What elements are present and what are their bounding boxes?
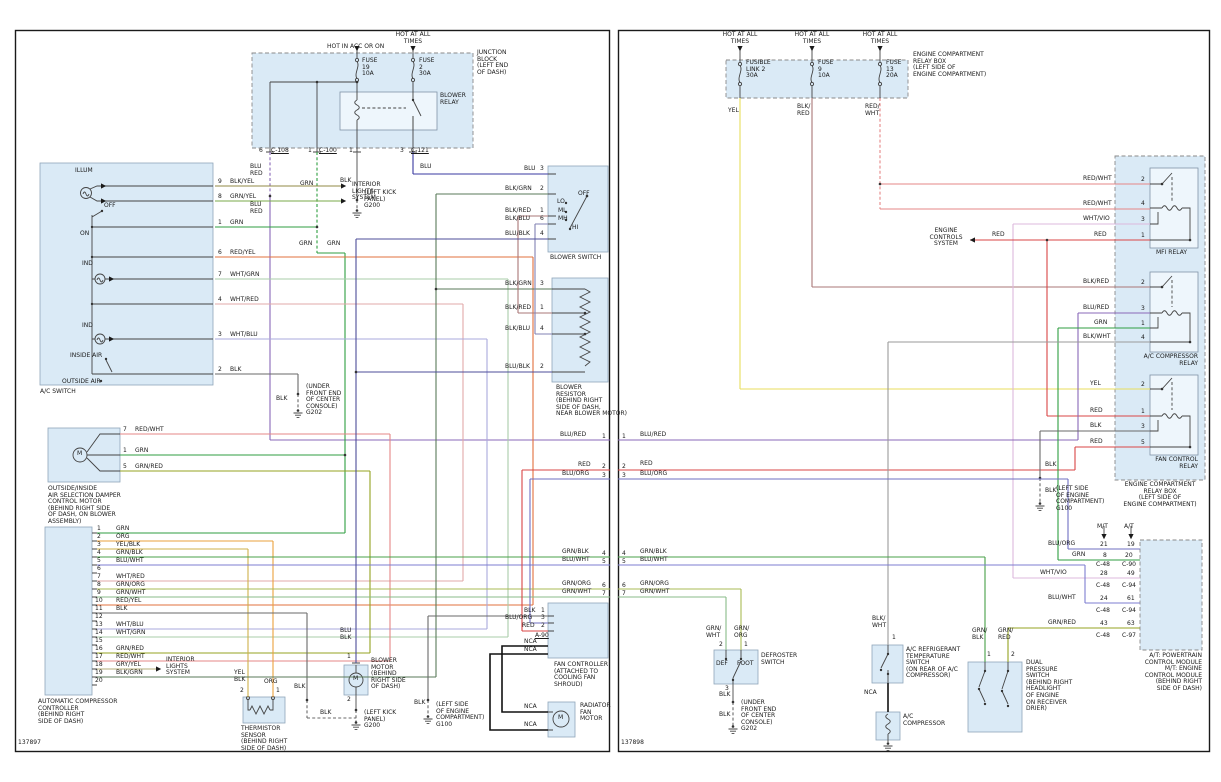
connector-label: C-48 <box>1096 583 1110 590</box>
pin-number: 2 <box>347 697 351 704</box>
wire-label: BLU/BLK <box>505 364 530 371</box>
wire-label: BLU/WHT <box>1048 595 1076 602</box>
pin-number: 21 <box>1100 542 1108 549</box>
wire-label: BLK/GRN <box>505 186 532 193</box>
wire-label: BLK <box>294 684 305 691</box>
wire-label: GRN/RED <box>116 646 144 653</box>
pin-number: 2 <box>240 688 244 695</box>
wire-label: WHT/GRN <box>230 272 259 279</box>
wire-label: GRY/YEL <box>116 662 141 669</box>
wire-label: BLK <box>1045 488 1056 495</box>
pin-number: 49 <box>1127 571 1135 578</box>
pin-number: 3 <box>1141 217 1145 224</box>
fuse-2-label: FUSE 2 30A <box>419 58 434 78</box>
wire-label: BLK/WHT <box>1083 334 1111 341</box>
wire-label: BLU/ORG <box>1048 541 1075 548</box>
pin-number: 20 <box>1125 553 1133 560</box>
pin-number: 3 <box>602 473 606 480</box>
connector-label: C-48 <box>1096 633 1110 640</box>
connector-label: C-94 <box>1122 608 1136 615</box>
wire-label: RED/WHT <box>135 427 164 434</box>
pin-number: 3 <box>622 473 626 480</box>
blower-relay-label: BLOWER RELAY <box>440 93 466 106</box>
wire-label: BLK <box>719 712 730 719</box>
connector-label: C-48 <box>1096 608 1110 615</box>
pcm-label: A/T: POWERTRAIN CONTROL MODULE M/T: ENGI… <box>1134 653 1202 693</box>
wire-label: RED <box>992 232 1005 239</box>
pin-number: 63 <box>1127 621 1135 628</box>
pin-number: 2 <box>1141 280 1145 287</box>
pin-number: 2 <box>602 464 606 471</box>
relay-box-label: ENGINE COMPARTMENT RELAY BOX (LEFT SIDE … <box>1118 482 1202 508</box>
pin-number: 9 <box>97 590 101 597</box>
connector-label: C-121 <box>411 148 429 155</box>
motor-symbol-letter: M <box>77 451 82 458</box>
pin-number: 7 <box>123 427 127 434</box>
wire-label: GRN/WHT <box>562 589 591 596</box>
pin-number: 2 <box>540 186 544 193</box>
pin-number: 3 <box>1141 424 1145 431</box>
pin-number: 7 <box>97 574 101 581</box>
defroster-foot-label: FOOT <box>737 661 754 668</box>
blower-motor-label: BLOWER MOTOR (BEHIND RIGHT SIDE OF DASH) <box>371 658 406 691</box>
wire-label: WHT/GRN <box>116 630 145 637</box>
blower-resistor-label: BLOWER RESISTOR (BEHIND RIGHT SIDE OF DA… <box>556 385 627 418</box>
pin-number: 1 <box>540 208 544 215</box>
wire-label: BLU/WHT <box>116 558 144 565</box>
pin-number: 19 <box>1127 542 1135 549</box>
wire-label: GRN/WHT <box>116 590 145 597</box>
wire-label: RED <box>522 623 535 630</box>
wire-label: RED <box>1094 232 1107 239</box>
pin-number: 16 <box>95 646 103 653</box>
wire-label: ORG <box>264 679 278 686</box>
pcm-column-mt: M/T <box>1097 524 1108 531</box>
ground-label-g200: (LEFT KICK PANEL) G200 <box>364 710 396 730</box>
wire-label: BLK <box>1090 423 1101 430</box>
pin-number: 8 <box>97 582 101 589</box>
pin-number: 1 <box>987 652 991 659</box>
pin-number: 6 <box>602 583 606 590</box>
pin-number: 2 <box>1141 382 1145 389</box>
wire-label: BLU/WHT <box>640 557 668 564</box>
pin-number: 4 <box>622 551 626 558</box>
wire-label: GRN/ WHT <box>706 626 721 639</box>
pin-number: 12 <box>95 614 103 621</box>
wire-label: YEL BLK <box>234 670 245 683</box>
wire-label: GRN/ ORG <box>734 626 749 639</box>
wire-label: BLK/ WHT <box>872 616 886 629</box>
wire-label: RED <box>1090 439 1103 446</box>
pin-number: 1 <box>1141 233 1145 240</box>
pin-number: 5 <box>123 464 127 471</box>
wire-label: BLU RED <box>250 202 263 215</box>
wire-label: BLU <box>524 166 536 173</box>
pin-number: 2 <box>541 623 545 630</box>
connector-label: C-97 <box>1122 633 1136 640</box>
mfi-relay-label: MFI RELAY <box>1156 250 1187 257</box>
pin-number: 11 <box>95 606 103 613</box>
connector-label: C-108 <box>271 148 289 155</box>
wire-label: RED/WHT <box>116 654 145 661</box>
pin-number: 3 <box>540 281 544 288</box>
ac-switch-inside-air-label: INSIDE AIR <box>70 353 102 360</box>
wire-label: BLK <box>719 692 730 699</box>
wire-label: GRN <box>116 526 129 533</box>
compressor-controller-label: AUTOMATIC COMPRESSOR CONTROLLER (BEHIND … <box>38 699 117 725</box>
wire-label: YEL <box>728 108 739 115</box>
wire-label: GRN/RED <box>135 464 163 471</box>
connector-label: C-48 <box>1096 562 1110 569</box>
wire-label: RED/ WHT <box>865 104 880 117</box>
pin-number: 13 <box>95 622 103 629</box>
header-hot-at-all-times: HOT AT ALL TIMES <box>860 32 900 45</box>
wire-label: BLU/ORG <box>505 615 532 622</box>
motor-symbol-letter: M <box>558 715 563 722</box>
pin-number: 1 <box>744 642 748 649</box>
wire-label: BLK <box>414 700 425 707</box>
wire-label: GRN/ORG <box>116 582 145 589</box>
fuse-13-label: FUSE 13 20A <box>886 60 901 80</box>
pin-number: 1 <box>308 148 312 155</box>
wire-label: GRN/BLK <box>562 549 589 556</box>
pin-number: 6 <box>259 148 263 155</box>
pin-number: 43 <box>1100 621 1108 628</box>
wire-label: BLK/ RED <box>797 104 810 117</box>
wire-label: BLK/GRN <box>505 281 532 288</box>
wire-label: GRN/BLK <box>116 550 143 557</box>
pin-number: 2 <box>540 364 544 371</box>
wire-label: GRN <box>135 448 148 455</box>
ground-label-g202: (UNDER FRONT END OF CENTER CONSOLE) G202 <box>306 384 341 417</box>
wire-label: GRN/ORG <box>640 581 669 588</box>
wire-label: BLU/RED <box>560 432 586 439</box>
pin-number: 4 <box>218 297 222 304</box>
pin-number: 3 <box>97 542 101 549</box>
wire-label: GRN/RED <box>1048 620 1076 627</box>
wire-label: BLU/RED <box>1083 305 1109 312</box>
wire-label: GRN <box>299 241 312 248</box>
wire-label: NCA <box>524 647 537 654</box>
system-ref-interior-lights: INTERIOR LIGHTS SYSTEM <box>166 657 195 677</box>
pin-number: 6 <box>540 216 544 223</box>
pin-number: 7 <box>218 272 222 279</box>
wire-label: RED <box>1090 408 1103 415</box>
wire-label: BLK <box>276 396 287 403</box>
wire-label: RED/YEL <box>116 598 141 605</box>
wire-label: WHT/VIO <box>1040 570 1067 577</box>
blower-switch-off-label: OFF <box>578 191 590 198</box>
pin-number: 3 <box>218 332 222 339</box>
wire-label: RED <box>578 462 591 469</box>
fuse-9-label: FUSE 9 10A <box>818 60 833 80</box>
wire-label: RED/WHT <box>1083 201 1112 208</box>
pin-number: 14 <box>95 630 103 637</box>
pin-number: 1 <box>276 688 280 695</box>
damper-motor-label: OUTSIDE/INSIDE AIR SELECTION DAMPER CONT… <box>48 486 121 526</box>
pin-number: 4 <box>97 550 101 557</box>
wire-label: BLK/YEL <box>230 179 254 186</box>
wire-label: WHT/RED <box>230 297 259 304</box>
wire-label: BLK/GRN <box>116 670 143 677</box>
pin-number: 1 <box>97 526 101 533</box>
pin-number: 1 <box>347 654 351 661</box>
defroster-def-label: DEF <box>716 661 728 668</box>
pin-number: 2 <box>1141 177 1145 184</box>
ac-compressor-relay-label: A/C COMPRESSOR RELAY <box>1140 354 1198 367</box>
ac-switch-on-label: ON <box>80 231 89 238</box>
wire-label: GRN/ORG <box>562 581 591 588</box>
fuse-19-label: FUSE 19 10A <box>362 58 377 78</box>
wire-label: GRN/WHT <box>640 589 669 596</box>
pcm-column-at: A/T <box>1124 524 1134 531</box>
pin-number: 5 <box>97 558 101 565</box>
pin-number: 2 <box>1011 652 1015 659</box>
blower-switch-hi-label: HI <box>572 225 578 232</box>
defroster-switch-label: DEFROSTER SWITCH <box>761 653 797 666</box>
ac-switch-illum-label: ILLUM <box>75 168 93 175</box>
fan-controller-label: FAN CONTROLLER (ATTACHED TO COOLING FAN … <box>554 662 608 688</box>
pin-number: 2 <box>218 367 222 374</box>
wire-label: GRN <box>1072 552 1085 559</box>
ac-switch-label: A/C SWITCH <box>40 389 76 396</box>
temp-switch-label: A/C REFRIGERANT TEMPERATURE SWITCH (ON R… <box>906 647 960 680</box>
pin-number: 8 <box>1103 553 1107 560</box>
wire-label: BLK/RED <box>505 208 531 215</box>
pin-number: 4 <box>1141 201 1145 208</box>
pin-number: 3 <box>541 615 545 622</box>
dual-pressure-switch-label: DUAL PRESSURE SWITCH (BEHIND RIGHT HEADL… <box>1026 660 1072 713</box>
wire-label: BLK/BLU <box>505 216 530 223</box>
pin-number: 10 <box>95 598 103 605</box>
wire-label: YEL <box>1090 381 1101 388</box>
blower-switch-mh-label: MH <box>558 216 568 223</box>
pin-number: 8 <box>218 194 222 201</box>
wire-label: BLU/RED <box>640 432 666 439</box>
pin-number: 4 <box>602 551 606 558</box>
blower-switch-label: BLOWER SWITCH <box>550 255 601 262</box>
wire-label: BLU RED <box>250 164 263 177</box>
wire-label: WHT/BLU <box>230 332 258 339</box>
wire-label: BLK <box>116 606 127 613</box>
pin-number: 1 <box>218 220 222 227</box>
fusible-link-label: FUSIBLE LINK 2 30A <box>746 60 771 80</box>
system-ref-interior-lights: INTERIOR LIGHTS SYSTEM <box>352 182 381 202</box>
wire-label: GRN/ RED <box>998 628 1013 641</box>
wire-label: YEL/BLK <box>116 542 140 549</box>
system-ref-engine-controls: ENGINE CONTROLS SYSTEM <box>928 228 964 248</box>
ac-switch-ind-label: IND <box>82 323 93 330</box>
pin-number: 9 <box>218 179 222 186</box>
pin-number: 1 <box>602 434 606 441</box>
wire-label: ORG <box>116 534 130 541</box>
wire-label: GRN <box>300 181 313 188</box>
pin-number: 6 <box>622 583 626 590</box>
wire-label: BLU/WHT <box>562 557 590 564</box>
wire-label: GRN <box>327 241 340 248</box>
wire-label: NCA <box>864 690 877 697</box>
pin-number: 6 <box>97 566 101 573</box>
wire-label: RED/YEL <box>230 250 255 257</box>
pin-number: 15 <box>95 638 103 645</box>
connector-label: A-90 <box>535 633 549 640</box>
pin-number: 7 <box>602 591 606 598</box>
wire-label: NCA <box>524 704 537 711</box>
pin-number: 1 <box>892 635 896 642</box>
ac-switch-off-label: OFF <box>104 203 116 210</box>
pin-number: 2 <box>622 464 626 471</box>
wire-label: RED/WHT <box>1083 176 1112 183</box>
wire-label: BLK <box>1045 462 1056 469</box>
pin-number: 5 <box>1141 440 1145 447</box>
diagram-code: 137897 <box>18 740 41 747</box>
diagram-code: 137898 <box>621 740 644 747</box>
pin-number: 7 <box>622 591 626 598</box>
pin-number: 17 <box>95 654 103 661</box>
header-hot-at-all-times: HOT AT ALL TIMES <box>393 32 433 45</box>
pin-number: 1 <box>1141 321 1145 328</box>
pin-number: 3 <box>400 148 404 155</box>
connector-label: C-94 <box>1122 583 1136 590</box>
pin-number: 1 <box>1141 409 1145 416</box>
motor-symbol-letter: M <box>353 676 358 683</box>
pin-number: 20 <box>95 678 103 685</box>
junction-block-label: JUNCTION BLOCK (LEFT END OF DASH) <box>477 50 508 76</box>
pin-number: 2 <box>719 642 723 649</box>
wire-label: BLK <box>230 367 241 374</box>
wire-label: WHT/BLU <box>116 622 144 629</box>
ground-label-g100: (LEFT SIDE OF ENGINE COMPARTMENT) G100 <box>436 702 484 728</box>
wire-label: GRN/ BLK <box>972 628 987 641</box>
blower-switch-lo-label: LO <box>557 199 565 206</box>
wire-label: NCA <box>524 639 537 646</box>
wire-label: GRN/BLK <box>640 549 667 556</box>
pin-number: 61 <box>1127 596 1135 603</box>
wire-label: GRN <box>230 220 243 227</box>
pin-number: 28 <box>1100 571 1108 578</box>
wire-label: BLU <box>420 164 432 171</box>
pin-number: 1 <box>123 448 127 455</box>
wire-label: BLU/BLK <box>505 231 530 238</box>
fan-control-relay-label: FAN CONTROL RELAY <box>1146 457 1198 470</box>
wire-label: WHT/VIO <box>1083 216 1110 223</box>
pin-number: 18 <box>95 662 103 669</box>
relay-box-label: ENGINE COMPARTMENT RELAY BOX (LEFT SIDE … <box>913 52 986 78</box>
pin-number: 5 <box>602 559 606 566</box>
wire-label: GRN <box>1094 320 1107 327</box>
header-hot-at-all-times: HOT AT ALL TIMES <box>792 32 832 45</box>
pin-number: 19 <box>95 670 103 677</box>
ac-compressor-label: A/C COMPRESSOR <box>903 714 945 727</box>
wire-label: RED <box>640 461 653 468</box>
wire-label: BLU BLK <box>340 628 352 641</box>
pin-number: 1 <box>349 148 353 155</box>
ac-switch-outside-air-label: OUTSIDE AIR <box>62 379 101 386</box>
wire-label: BLK <box>320 710 331 717</box>
wire-label: BLK/BLU <box>505 326 530 333</box>
pin-number: 3 <box>540 166 544 173</box>
ground-label-g202: (UNDER FRONT END OF CENTER CONSOLE) G202 <box>741 700 776 733</box>
connector-label: C-90 <box>1122 562 1136 569</box>
wire-label: BLU/ORG <box>562 471 589 478</box>
pin-number: 4 <box>540 231 544 238</box>
right-panel-geometry <box>618 31 1210 752</box>
ground-label-g100: (LEFT SIDE OF ENGINE COMPARTMENT) G100 <box>1056 486 1104 512</box>
wiring-diagram-page: HOT IN ACC OR ON HOT AT ALL TIMES JUNCTI… <box>0 0 1221 782</box>
pin-number: 1 <box>622 434 626 441</box>
wire-label: WHT/RED <box>116 574 145 581</box>
pin-number: 5 <box>622 559 626 566</box>
pin-number: 4 <box>1141 335 1145 342</box>
connector-label: C-100 <box>319 148 337 155</box>
pin-number: 24 <box>1100 596 1108 603</box>
pin-number: 4 <box>540 326 544 333</box>
radiator-fan-label: RADIATOR FAN MOTOR <box>580 703 611 723</box>
wire-label: BLK <box>340 178 351 185</box>
pin-number: 2 <box>97 534 101 541</box>
wire-label: BLK/RED <box>505 305 531 312</box>
blower-switch-ml-label: ML <box>558 208 567 215</box>
pin-number: 3 <box>1141 306 1145 313</box>
thermistor-label: THERMISTOR SENSOR (BEHIND RIGHT SIDE OF … <box>241 726 287 752</box>
ac-switch-ind-label: IND <box>82 261 93 268</box>
header-hot-in-acc: HOT IN ACC OR ON <box>327 44 384 51</box>
header-hot-at-all-times: HOT AT ALL TIMES <box>720 32 760 45</box>
wire-label: GRN/YEL <box>230 194 256 201</box>
wire-label: BLU/ORG <box>640 471 667 478</box>
wire-label: NCA <box>524 722 537 729</box>
pin-number: 6 <box>218 250 222 257</box>
pin-number: 1 <box>540 305 544 312</box>
wire-label: BLK/RED <box>1083 279 1109 286</box>
